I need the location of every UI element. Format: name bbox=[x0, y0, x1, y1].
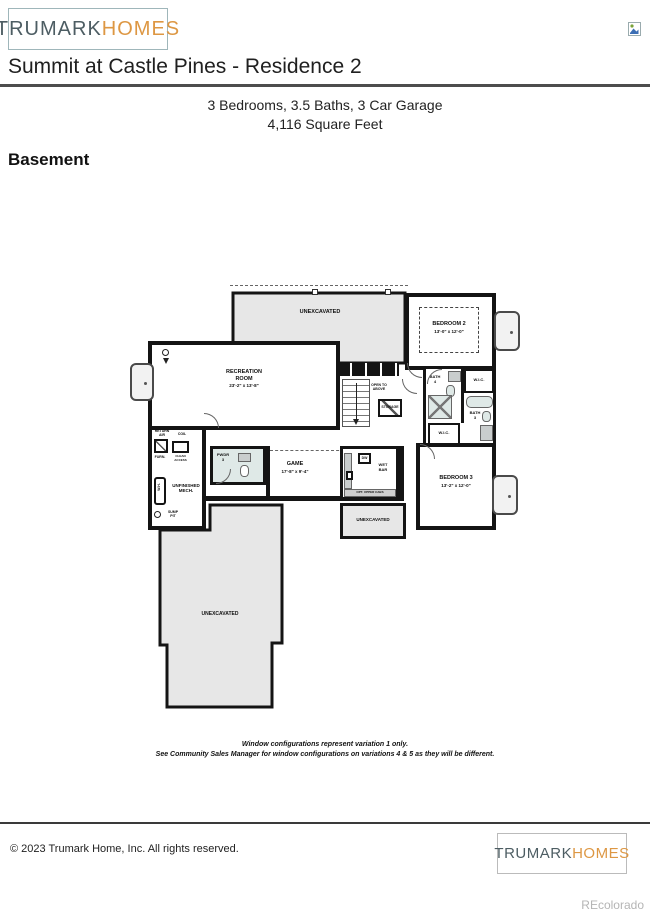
recreation-dims: 23'-2" x 13'-8" bbox=[189, 383, 299, 388]
wall-segment bbox=[461, 369, 464, 423]
door-arc bbox=[407, 363, 422, 378]
bar-sink bbox=[346, 471, 353, 480]
bath4-shower bbox=[428, 395, 452, 419]
bath3-toilet bbox=[480, 425, 493, 441]
trumark-logo: TRUMARKHOMES bbox=[8, 8, 168, 50]
powder-label: PWDR 3 bbox=[214, 453, 232, 463]
footer-logo-trumark: TRUMARK bbox=[494, 845, 572, 862]
clean-access-label: CLEAN ACCESS bbox=[170, 455, 191, 462]
wet-bar-label: WET BAR bbox=[372, 463, 394, 473]
stair-arrow bbox=[356, 383, 357, 419]
footer-trumark-logo: TRUMARKHOMES bbox=[497, 833, 627, 874]
furnace bbox=[154, 439, 168, 453]
subtitle-sqft: 4,116 Square Feet bbox=[0, 116, 650, 132]
door-arc bbox=[402, 379, 417, 394]
broken-image-icon bbox=[628, 22, 642, 37]
window-well bbox=[492, 475, 518, 515]
page: TRUMARKHOMES Summit at Castle Pines - Re… bbox=[0, 0, 650, 920]
footer-logo-homes: HOMES bbox=[572, 845, 630, 862]
bath3-tub bbox=[466, 396, 493, 408]
bath3-sink bbox=[482, 411, 491, 422]
logo-text-homes: HOMES bbox=[102, 18, 180, 41]
unexcavated-bottom-shape bbox=[155, 500, 287, 712]
bedroom2-label: BEDROOM 2 bbox=[419, 321, 479, 328]
column-marker bbox=[385, 289, 391, 295]
recolorado-watermark: REcolorado bbox=[581, 898, 644, 912]
floor-plan: UNEXCAVATED BEDROOM 2 13'-0" x 12'-0" RE… bbox=[130, 283, 526, 715]
wic-upper-label: W.I.C. bbox=[464, 378, 494, 383]
powder-toilet bbox=[240, 465, 249, 477]
logo-text-trumark: TRUMARK bbox=[0, 18, 102, 41]
game-dims: 17'-8" x 9'-4" bbox=[265, 469, 325, 474]
bedroom3-dims: 13'-2" x 12'-0" bbox=[426, 483, 486, 488]
wall-segment bbox=[396, 449, 402, 497]
clean-access bbox=[172, 441, 189, 453]
mech-label: UNFINISHED MECH. bbox=[168, 483, 204, 494]
copyright-text: © 2023 Trumark Home, Inc. All rights res… bbox=[10, 843, 239, 855]
column-marker bbox=[312, 289, 318, 295]
powder-sink bbox=[238, 453, 251, 462]
subtitle-specs: 3 Bedrooms, 3.5 Baths, 3 Car Garage bbox=[0, 97, 650, 113]
wic-lower-label: W.I.C. bbox=[428, 431, 460, 436]
stair-wall bbox=[337, 363, 399, 376]
stair-arrow-head bbox=[353, 419, 359, 425]
upper-cabs-label: OPT. UPPER CABS bbox=[344, 491, 396, 495]
dishwasher-label: DW bbox=[358, 456, 371, 460]
disclaimer-line2: See Community Sales Manager for window c… bbox=[0, 750, 650, 760]
unexcavated-bottom-label: UNEXCAVATED bbox=[165, 611, 275, 617]
page-title: Summit at Castle Pines - Residence 2 bbox=[8, 55, 362, 79]
open-above-label: OPEN TO ABOVE bbox=[371, 383, 387, 391]
game-label: GAME bbox=[265, 461, 325, 468]
wall-segment bbox=[266, 446, 270, 500]
storage-label: STORAGE bbox=[378, 405, 402, 409]
unexcavated-mid-label: UNEXCAVATED bbox=[340, 517, 406, 522]
window-well bbox=[130, 363, 154, 401]
recreation-label: RECREATION ROOM bbox=[189, 369, 299, 382]
fixture-arrow-icon bbox=[163, 358, 169, 364]
unexcavated-top-label: UNEXCAVATED bbox=[240, 309, 400, 316]
footer-divider bbox=[0, 822, 650, 824]
deck-line-above bbox=[230, 285, 408, 286]
bedroom3-label: BEDROOM 3 bbox=[426, 475, 486, 482]
title-divider bbox=[0, 84, 650, 87]
floor-heading: Basement bbox=[8, 150, 89, 170]
return-air-label: RETURN AIR bbox=[152, 429, 172, 437]
furnace-label: FURN. bbox=[150, 455, 170, 459]
bath4-sink bbox=[448, 371, 461, 382]
disclaimer-line1: Window configurations represent variatio… bbox=[0, 740, 650, 750]
coil-label: COIL bbox=[174, 432, 190, 436]
window-well bbox=[494, 311, 520, 351]
fixture-icon bbox=[162, 349, 169, 356]
bedroom2-dims: 13'-0" x 12'-0" bbox=[419, 329, 479, 334]
water-heater-label: W.H. bbox=[157, 477, 161, 497]
